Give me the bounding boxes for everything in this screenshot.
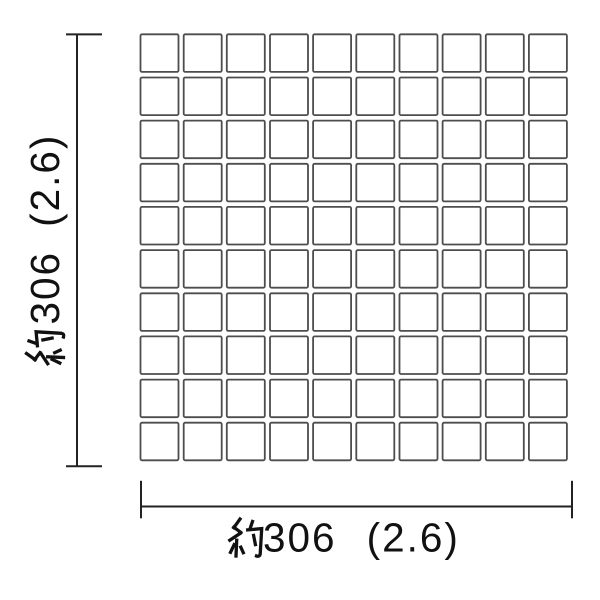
- svg-text:(2.6): (2.6): [22, 134, 68, 227]
- svg-text:306: 306: [22, 251, 68, 325]
- svg-text:306: 306: [263, 514, 337, 560]
- svg-text:(2.6): (2.6): [367, 514, 460, 560]
